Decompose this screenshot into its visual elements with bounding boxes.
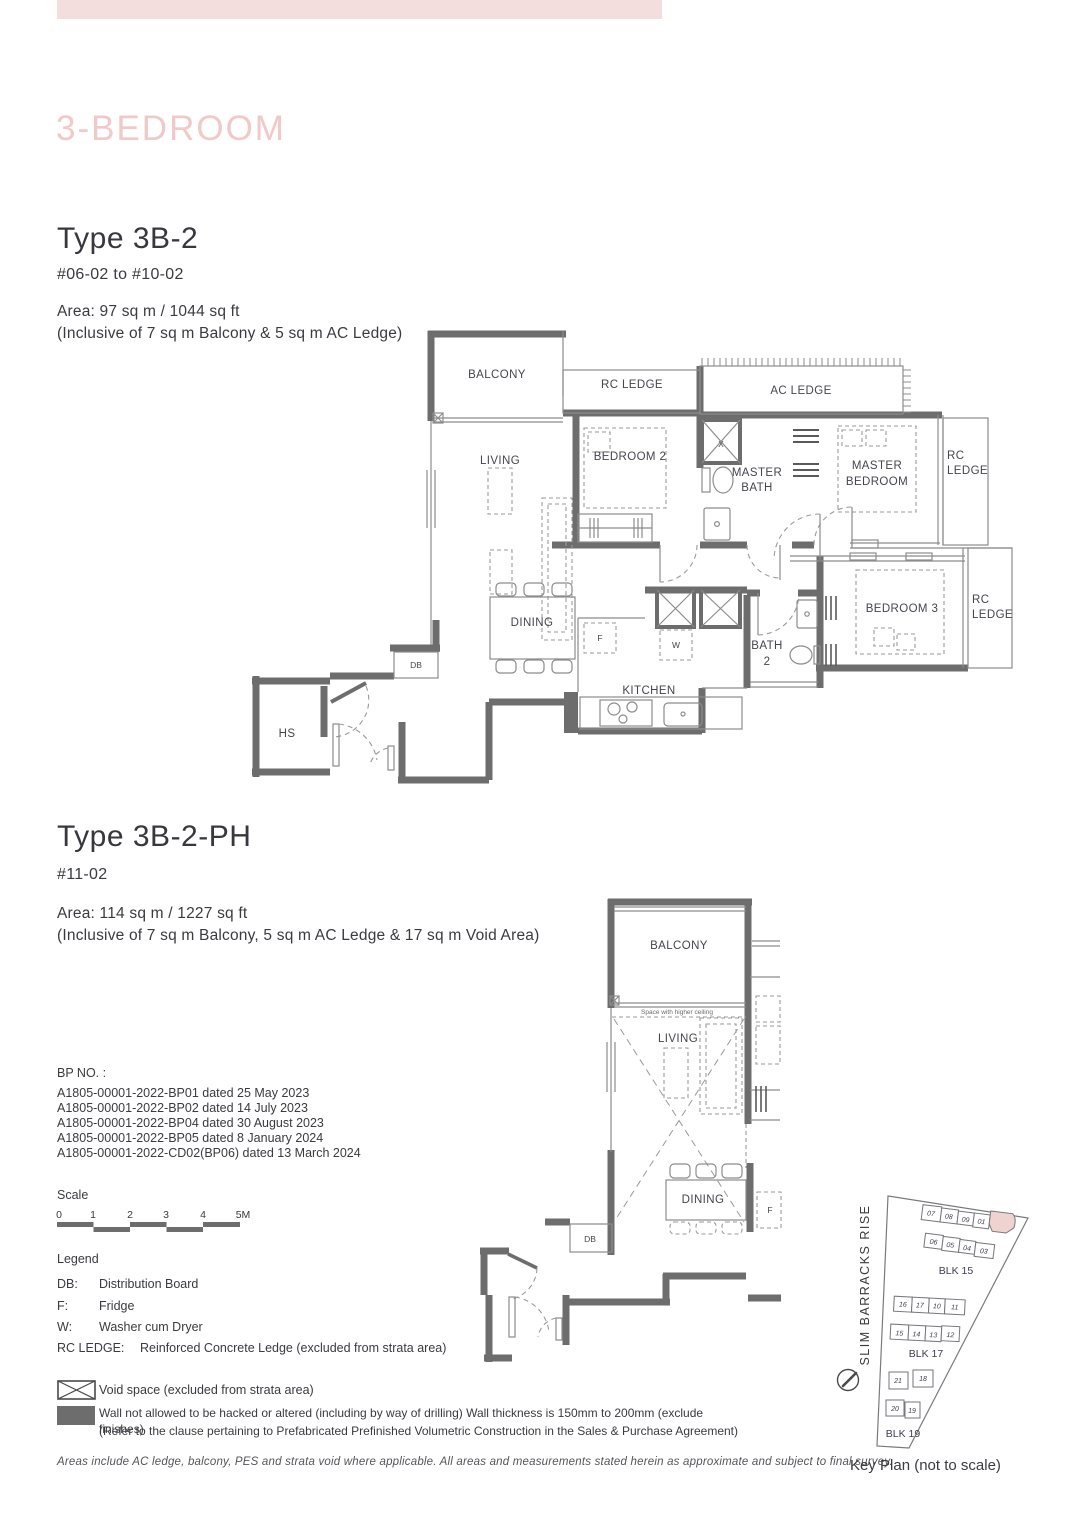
dining-label: DINING <box>511 617 554 629</box>
floor-plan-type-3b2: BALCONY RC LEDGE AC LEDGE LIVING BEDROOM… <box>248 320 1016 795</box>
unit-num: 06 <box>929 1239 938 1247</box>
bp-list: A1805-00001-2022-BP01 dated 25 May 2023 … <box>57 1086 361 1161</box>
bp-item: A1805-00001-2022-BP04 dated 30 August 20… <box>57 1116 361 1131</box>
bedroom3-label: BEDROOM 3 <box>866 603 939 615</box>
scale-tick: 5M <box>236 1209 251 1221</box>
void-space-note: Void space (excluded from strata area) <box>99 1383 314 1397</box>
legend-desc: Distribution Board <box>99 1277 198 1291</box>
unit-b-title: Type 3B-2-PH <box>57 820 251 854</box>
north-arrow-icon <box>838 1370 859 1391</box>
street-label: SLIM BARRACKS RISE <box>858 1204 872 1365</box>
brochure-page: 3-BEDROOM Type 3B-2 #06-02 to #10-02 Are… <box>0 0 1072 1540</box>
rc-ledge-right-1a: RC <box>947 450 964 462</box>
unit-num: 04 <box>963 1245 972 1253</box>
unit-num: 13 <box>929 1332 937 1339</box>
legend-desc: Washer cum Dryer <box>99 1320 203 1334</box>
washer-label: W <box>672 640 680 650</box>
unit-b-area-1: Area: 114 sq m / 1227 sq ft <box>57 903 247 925</box>
living-label: LIVING <box>480 455 520 467</box>
top-accent-bar <box>57 0 662 19</box>
rc-ledge-right-2a: RC <box>972 594 989 606</box>
unit-num: 12 <box>946 1332 954 1339</box>
void-space-icon <box>57 1380 97 1401</box>
legend-desc: Reinforced Concrete Ledge (excluded from… <box>140 1341 446 1355</box>
legend-abbr: DB: <box>57 1277 78 1291</box>
blk15-cluster: 07 08 09 01 06 05 04 03 <box>918 1203 1017 1261</box>
living-label: LIVING <box>658 1033 698 1045</box>
floor-plan-type-3b2-ph: BALCONY Space with higher ceiling LIVING… <box>476 890 782 1376</box>
unit-b-floors: #11-02 <box>57 866 107 884</box>
legend-abbr: W: <box>57 1320 72 1334</box>
master-bath-label-1: MASTER <box>732 467 782 479</box>
bp-heading: BP NO. : <box>57 1066 106 1080</box>
db-label: DB <box>584 1234 596 1244</box>
bp-item: A1805-00001-2022-BP05 dated 8 January 20… <box>57 1131 361 1146</box>
rc-ledge-label: RC LEDGE <box>601 379 663 391</box>
wall-note-2: (Refer to the clause pertaining to Prefa… <box>99 1423 739 1439</box>
unit-num: 09 <box>961 1217 970 1225</box>
scale-bar: Scale 0 1 2 3 4 5M <box>50 1186 260 1238</box>
kitchen-label: KITCHEN <box>622 685 675 697</box>
higher-ceiling-label: Space with higher ceiling <box>641 1009 713 1016</box>
scale-segments <box>57 1222 240 1232</box>
bedroom2-label: BEDROOM 2 <box>594 451 667 463</box>
void-x-label: X <box>718 439 724 449</box>
room-labels: BALCONY RC LEDGE AC LEDGE LIVING BEDROOM… <box>279 369 1013 740</box>
page-title: 3-BEDROOM <box>56 109 286 149</box>
scale-tick: 0 <box>56 1209 62 1221</box>
bath2-label-2: 2 <box>764 656 771 668</box>
blk19-cluster: 21 18 20 19 <box>886 1370 933 1418</box>
bath2-label-1: BATH <box>751 640 782 652</box>
key-plan-caption: Key Plan (not to scale) <box>850 1457 1001 1474</box>
master-bedroom-label-2: BEDROOM <box>846 476 908 488</box>
legend-abbr: F: <box>57 1299 68 1313</box>
highlighted-unit-02 <box>988 1211 1016 1234</box>
scale-tick: 2 <box>127 1209 133 1221</box>
unit-num: 11 <box>951 1304 959 1311</box>
hs-label: HS <box>279 728 296 740</box>
ac-ledge-label: AC LEDGE <box>770 385 831 397</box>
unit-num: 16 <box>899 1301 907 1308</box>
bp-item: A1805-00001-2022-BP02 dated 14 July 2023 <box>57 1101 361 1116</box>
unit-a-title: Type 3B-2 <box>57 222 198 256</box>
doors <box>508 1254 562 1340</box>
unit-a-area-1: Area: 97 sq m / 1044 sq ft <box>57 301 240 323</box>
unit-num: 08 <box>944 1213 953 1221</box>
rc-ledge-right-2b: LEDGE <box>972 609 1013 621</box>
blk17-cluster: 16 17 10 11 15 14 13 12 <box>890 1296 965 1343</box>
master-bedroom-label-1: MASTER <box>852 460 902 472</box>
fridge-label: F <box>767 1205 772 1215</box>
db-label: DB <box>410 660 422 670</box>
legend-heading: Legend <box>57 1252 99 1266</box>
rc-ledge-right-1b: LEDGE <box>947 465 988 477</box>
unit-num: 15 <box>895 1330 903 1337</box>
unit-num: 03 <box>979 1248 988 1256</box>
unit-num: 21 <box>893 1378 902 1385</box>
unit-num: 05 <box>946 1242 955 1250</box>
blk19-label: BLK 19 <box>886 1428 921 1440</box>
blk17-label: BLK 17 <box>909 1348 944 1360</box>
unit-a-floors: #06-02 to #10-02 <box>57 266 184 284</box>
unit-num: 20 <box>890 1406 899 1413</box>
blk15-label: BLK 15 <box>939 1265 974 1277</box>
balcony-label: BALCONY <box>650 940 708 952</box>
bp-item: A1805-00001-2022-CD02(BP06) dated 13 Mar… <box>57 1146 361 1161</box>
key-plan: SLIM BARRACKS RISE 07 08 09 01 06 05 04 … <box>828 1186 1048 1486</box>
unit-num: 01 <box>977 1218 986 1226</box>
bp-item: A1805-00001-2022-BP01 dated 25 May 2023 <box>57 1086 361 1101</box>
unit-num: 18 <box>919 1376 927 1383</box>
scale-tick: 3 <box>163 1209 169 1221</box>
legend-desc: Fridge <box>99 1299 134 1313</box>
scale-tick: 4 <box>200 1209 206 1221</box>
balcony-label: BALCONY <box>468 369 526 381</box>
wall-swatch-icon <box>57 1406 95 1425</box>
unit-num: 14 <box>912 1331 920 1338</box>
scale-tick: 1 <box>90 1209 96 1221</box>
scale-label: Scale <box>57 1188 88 1202</box>
dining-label: DINING <box>682 1194 725 1206</box>
unit-b-area-2: (Inclusive of 7 sq m Balcony, 5 sq m AC … <box>57 925 539 947</box>
master-bath-label-2: BATH <box>741 482 772 494</box>
legend-abbr: RC LEDGE: <box>57 1341 124 1355</box>
unit-num: 10 <box>933 1303 941 1310</box>
unit-num: 19 <box>908 1408 916 1415</box>
fridge-label: F <box>597 633 602 643</box>
